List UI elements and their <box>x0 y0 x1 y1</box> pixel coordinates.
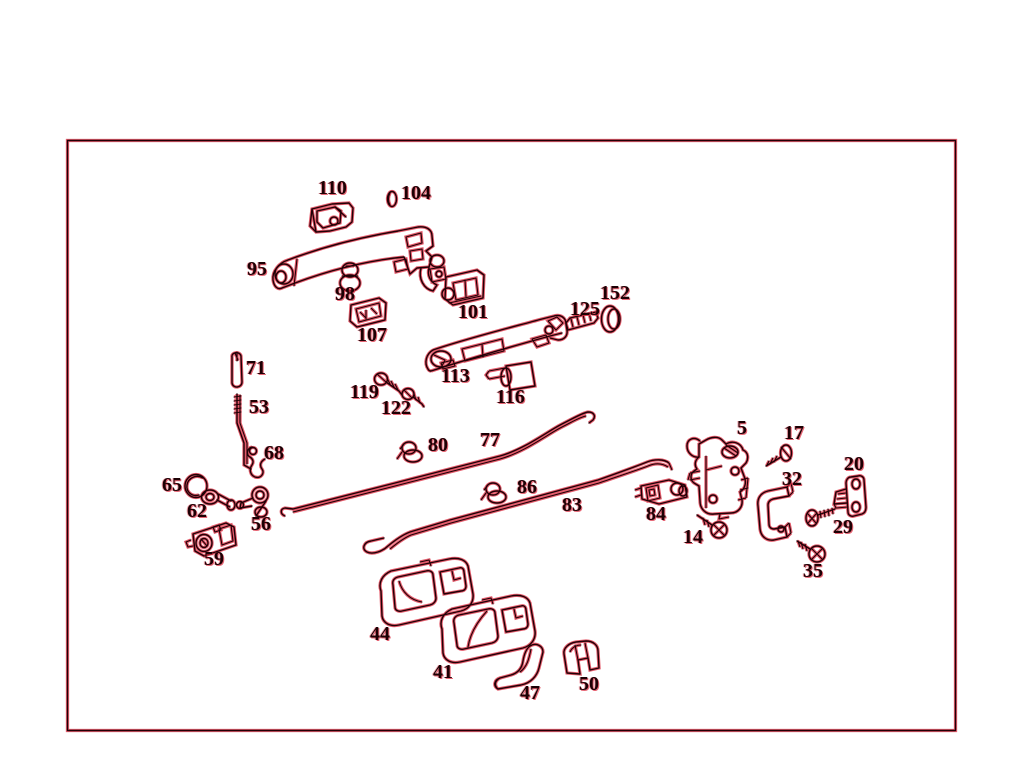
part-label-98[interactable]: 98 <box>335 284 355 304</box>
part-label-152[interactable]: 152 <box>600 283 630 303</box>
part-label-68[interactable]: 68 <box>264 443 284 463</box>
part-label-80[interactable]: 80 <box>428 435 448 455</box>
part-label-29[interactable]: 29 <box>833 517 853 537</box>
part-label-95[interactable]: 95 <box>247 259 267 279</box>
part-label-101[interactable]: 101 <box>458 302 488 322</box>
part-label-20[interactable]: 20 <box>844 454 864 474</box>
part-label-104[interactable]: 104 <box>401 183 431 203</box>
part-label-5[interactable]: 5 <box>737 418 747 438</box>
part-label-59[interactable]: 59 <box>204 549 224 569</box>
part-label-86[interactable]: 86 <box>517 477 537 497</box>
diagram-canvas: 1101049598101107152125113119122116715368… <box>0 0 1024 781</box>
part-label-50[interactable]: 50 <box>579 674 599 694</box>
part-label-110[interactable]: 110 <box>318 178 347 198</box>
part-label-125[interactable]: 125 <box>570 299 600 319</box>
part-label-83[interactable]: 83 <box>562 495 582 515</box>
part-label-119[interactable]: 119 <box>350 382 379 402</box>
part-label-56[interactable]: 56 <box>251 514 271 534</box>
part-label-84[interactable]: 84 <box>646 504 666 524</box>
part-label-41[interactable]: 41 <box>433 662 453 682</box>
part-label-77[interactable]: 77 <box>480 430 500 450</box>
part-label-17[interactable]: 17 <box>784 423 804 443</box>
part-label-53[interactable]: 53 <box>249 397 269 417</box>
part-label-35[interactable]: 35 <box>803 561 823 581</box>
part-label-65[interactable]: 65 <box>162 475 182 495</box>
part-label-44[interactable]: 44 <box>370 624 390 644</box>
part-label-113[interactable]: 113 <box>441 366 470 386</box>
part-label-116[interactable]: 116 <box>496 387 525 407</box>
part-label-62[interactable]: 62 <box>187 501 207 521</box>
part-label-47[interactable]: 47 <box>520 683 540 703</box>
part-label-71[interactable]: 71 <box>246 358 266 378</box>
part-label-107[interactable]: 107 <box>357 325 387 345</box>
part-label-32[interactable]: 32 <box>782 469 802 489</box>
part-labels: 1101049598101107152125113119122116715368… <box>0 0 1024 781</box>
part-label-122[interactable]: 122 <box>381 398 411 418</box>
part-label-14[interactable]: 14 <box>683 527 703 547</box>
